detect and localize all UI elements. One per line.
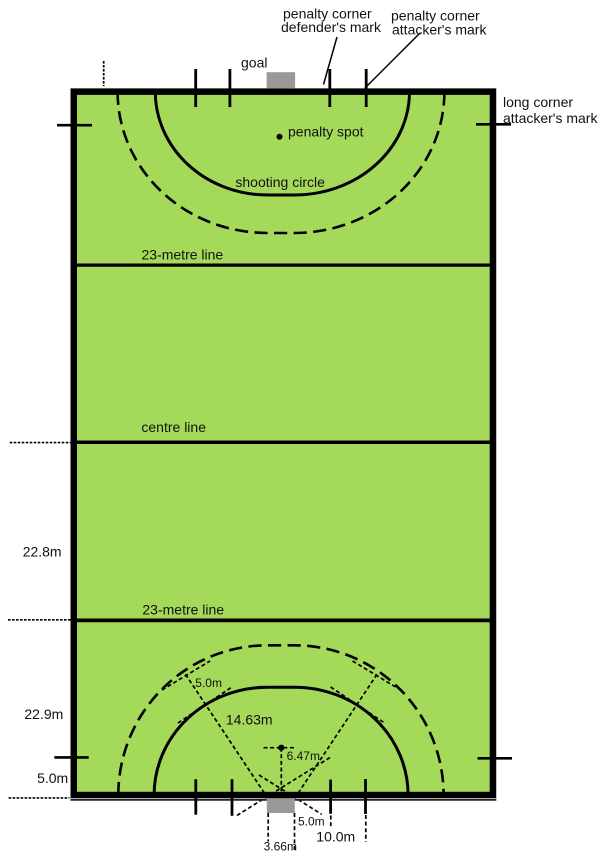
svg-text:attacker's mark: attacker's mark — [503, 110, 598, 126]
svg-text:5.0m: 5.0m — [195, 676, 222, 690]
svg-text:22.9m: 22.9m — [24, 706, 63, 722]
svg-text:5.0m: 5.0m — [37, 770, 68, 786]
svg-text:penalty spot: penalty spot — [288, 124, 364, 140]
svg-text:22.8m: 22.8m — [23, 544, 62, 560]
svg-text:centre line: centre line — [141, 419, 206, 435]
svg-text:23-metre line: 23-metre line — [142, 246, 224, 262]
svg-text:shooting circle: shooting circle — [235, 174, 325, 190]
svg-text:14.63m: 14.63m — [226, 712, 273, 728]
svg-text:10.0m: 10.0m — [316, 828, 355, 844]
svg-text:attacker's mark: attacker's mark — [392, 21, 487, 37]
svg-text:long corner: long corner — [503, 94, 573, 110]
svg-text:6.47m: 6.47m — [287, 749, 320, 763]
svg-text:goal: goal — [241, 55, 267, 71]
svg-text:defender's mark: defender's mark — [281, 19, 382, 35]
svg-text:5.0m: 5.0m — [298, 814, 325, 828]
svg-text:23-metre line: 23-metre line — [142, 602, 224, 618]
svg-text:3.66m: 3.66m — [264, 839, 297, 853]
